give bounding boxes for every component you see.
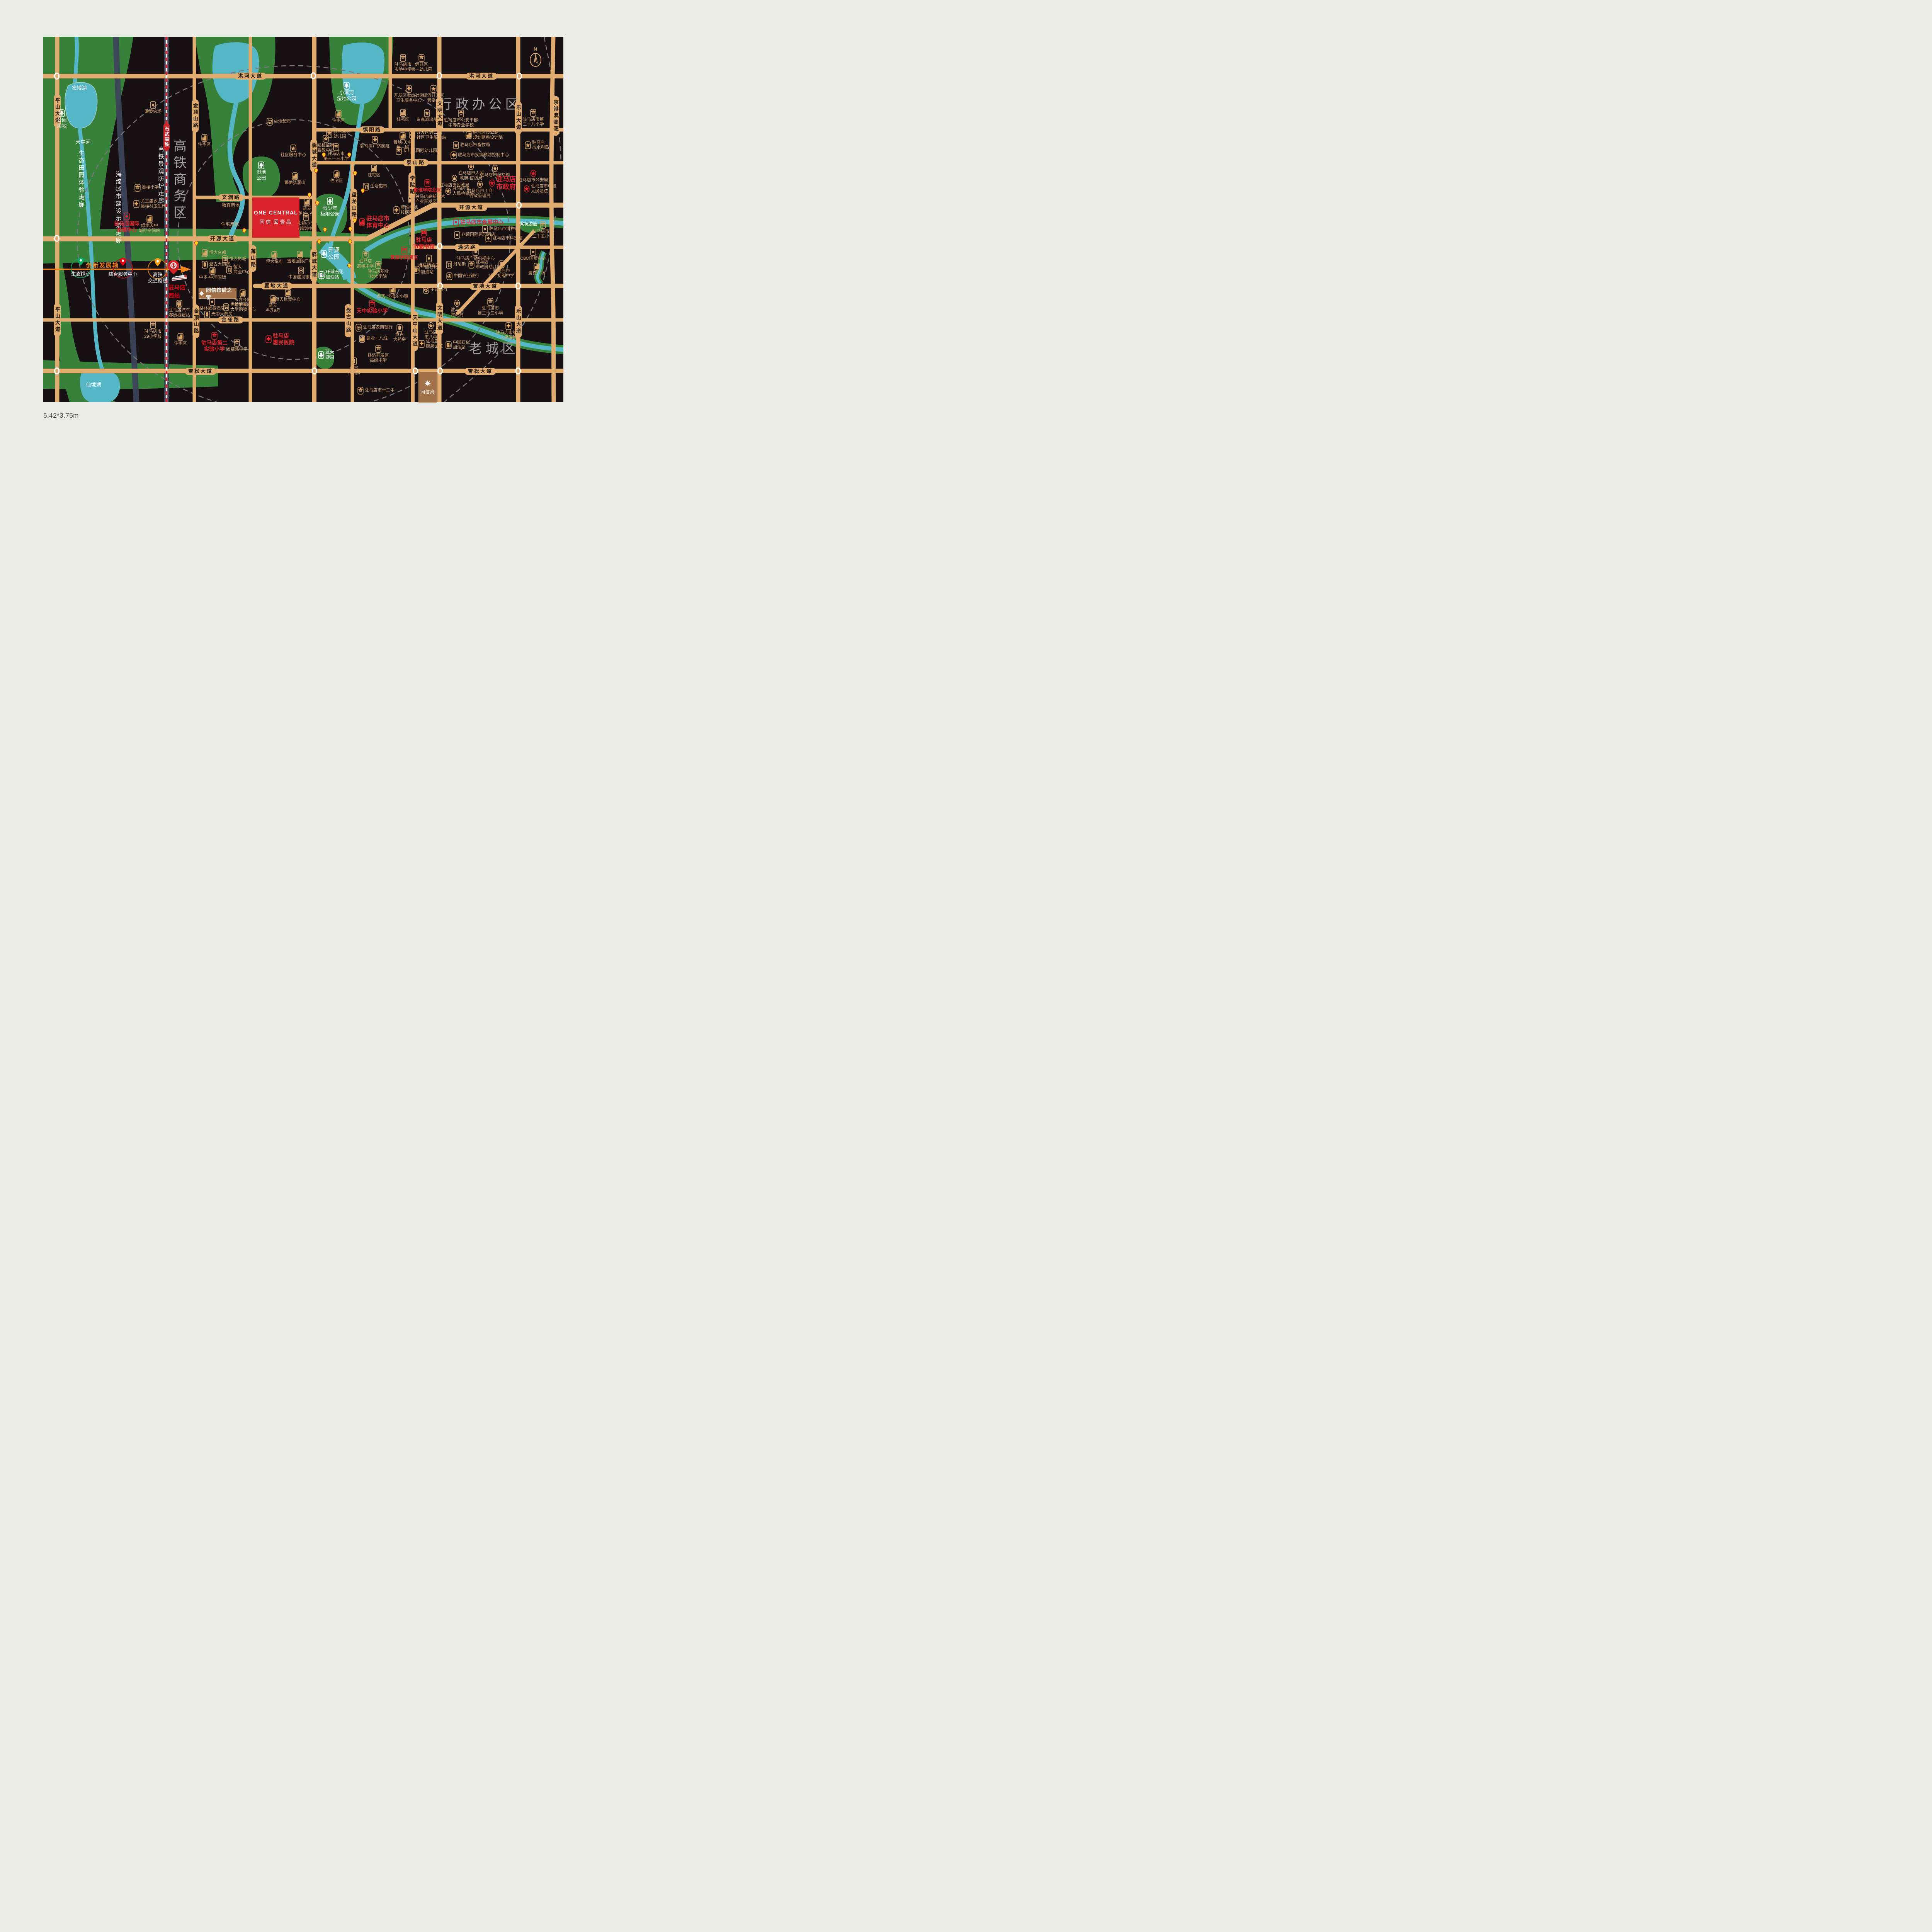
road-label: 置地大道 bbox=[469, 283, 501, 290]
poi-label: 中国石化加油站 bbox=[453, 340, 470, 350]
poi-label: 团结路中学 bbox=[208, 347, 266, 352]
landmark-icon bbox=[150, 101, 156, 109]
hospital-icon bbox=[505, 322, 512, 330]
school-icon bbox=[134, 184, 141, 192]
landmark-icon bbox=[426, 255, 432, 262]
road-label: 开源大道 bbox=[207, 235, 238, 242]
pharmacy-icon bbox=[202, 261, 208, 269]
compass-n-label: N bbox=[529, 46, 543, 52]
poi-label: 生活超市 bbox=[370, 184, 387, 189]
road-label: 开源大道 bbox=[456, 204, 487, 211]
buildings-icon bbox=[408, 196, 414, 203]
map-pin-icon bbox=[361, 188, 365, 196]
star-icon bbox=[453, 141, 459, 149]
map-pin-icon bbox=[317, 239, 321, 247]
tree-icon bbox=[318, 351, 324, 359]
district-label: 老城区 bbox=[469, 338, 519, 357]
star-icon bbox=[424, 109, 430, 117]
poi-label: 经济开发区高级中学 bbox=[349, 353, 407, 363]
poi-label: 恒大商业中心 bbox=[233, 265, 250, 275]
hospital-icon bbox=[265, 335, 272, 343]
school-icon bbox=[418, 54, 425, 62]
school-icon bbox=[424, 179, 430, 187]
road-label: 平山大道 bbox=[54, 303, 61, 337]
poi-label: 蓝天世贸中心 bbox=[259, 297, 317, 302]
poi-label: 丹尼斯 bbox=[453, 262, 466, 267]
intersection-ring bbox=[516, 202, 522, 209]
map-pin-icon bbox=[347, 152, 352, 160]
star-icon bbox=[323, 135, 329, 143]
intersection-ring bbox=[437, 367, 443, 374]
hospital-icon bbox=[393, 206, 400, 214]
intersection-ring bbox=[515, 367, 521, 374]
poi-label: 公园用地 bbox=[33, 117, 91, 129]
gov-star-icon bbox=[477, 180, 483, 188]
map-pin-icon bbox=[347, 263, 352, 270]
axis-node-label: 高铁交通枢纽 bbox=[148, 272, 167, 284]
poi-label: 蓝天·卡梅尔小镇 bbox=[364, 294, 422, 299]
bus-icon bbox=[176, 300, 182, 308]
gov-star-icon bbox=[530, 170, 536, 177]
axis-name: 创新发展轴 bbox=[86, 261, 119, 269]
cart-icon bbox=[446, 261, 452, 269]
landmark-icon bbox=[453, 218, 459, 226]
poi-label: 仙境湖 bbox=[65, 382, 122, 388]
gov-star-icon bbox=[454, 299, 460, 307]
district-label: 高铁商务区 bbox=[170, 139, 189, 222]
poi-label: 驻马店市中级人民法院 bbox=[531, 184, 556, 194]
gov-star-icon bbox=[468, 163, 474, 170]
poi-label: 农博湖 bbox=[50, 85, 108, 91]
poi-label: 爱克广场 bbox=[508, 271, 566, 276]
road-label: 金顶山路 bbox=[192, 99, 199, 133]
road-label: 京港澳高速 bbox=[552, 96, 559, 136]
school-icon bbox=[487, 298, 493, 306]
map-pin-icon bbox=[323, 227, 327, 235]
school-icon bbox=[375, 345, 381, 353]
poi-label: 关王庙乡吴楼村卫生所 bbox=[141, 199, 166, 209]
poi-label: 驻马店市十二中 bbox=[365, 388, 395, 393]
intersection-ring bbox=[515, 282, 521, 289]
buildings-icon bbox=[371, 165, 377, 172]
poi-label: 天中河 bbox=[54, 139, 112, 145]
cart-icon bbox=[267, 118, 273, 126]
tree-icon bbox=[344, 82, 350, 90]
rail-label: 石武高铁 bbox=[163, 123, 170, 151]
hospital-icon bbox=[406, 85, 412, 93]
landmark-icon bbox=[454, 231, 460, 239]
cart-icon bbox=[226, 266, 232, 274]
map-pin-icon bbox=[314, 168, 318, 175]
school-icon bbox=[375, 261, 381, 269]
star-icon bbox=[290, 145, 296, 152]
star-icon bbox=[430, 85, 437, 93]
landmark-icon bbox=[482, 225, 488, 233]
map-pin-icon bbox=[353, 218, 357, 225]
intersection-ring bbox=[517, 73, 522, 80]
poi-label: 住宅区 bbox=[175, 142, 233, 147]
bank-icon bbox=[298, 267, 304, 274]
poi-label: 恒大影城 bbox=[229, 257, 246, 262]
axis-node-label: 综合服务中心 bbox=[108, 272, 137, 278]
poi-label: 驻马店市疾病预防控制中心 bbox=[458, 153, 509, 158]
map-pin-icon bbox=[353, 171, 357, 178]
buildings-icon bbox=[201, 134, 207, 142]
bank-icon bbox=[355, 324, 362, 332]
buildings-icon bbox=[202, 249, 208, 257]
gov-star-icon bbox=[451, 175, 457, 182]
landmark-icon bbox=[485, 235, 492, 242]
intersection-ring bbox=[54, 367, 60, 374]
axis-node-pin-icon bbox=[155, 258, 161, 268]
landmark-icon bbox=[473, 248, 479, 256]
poi-label: 驻马店高级中学 bbox=[337, 259, 395, 269]
poi-label: 教育用地 bbox=[202, 203, 260, 209]
gov-star-icon bbox=[489, 179, 495, 187]
poi-label: 黄淮学院南区 bbox=[375, 255, 433, 260]
school-icon bbox=[303, 213, 309, 221]
poi-label: 驻马店市公安局 bbox=[504, 178, 562, 183]
poi-label: 万木森林幼儿园 bbox=[333, 129, 350, 139]
buildings-icon bbox=[359, 335, 365, 343]
poi-label: 驻马店市畜牧局 bbox=[460, 143, 490, 148]
poi-label: 蓝天游园 bbox=[325, 350, 334, 361]
gov-star-icon bbox=[428, 322, 434, 330]
hospital-icon bbox=[133, 200, 139, 208]
compass-icon bbox=[529, 52, 543, 68]
poi-label: CBD国贸中心 bbox=[504, 256, 562, 261]
poi-label: 黄淮学院北区 bbox=[398, 187, 456, 193]
poi-label: 住宅区 bbox=[308, 179, 366, 184]
axis-node-label: 生态绿心 bbox=[71, 271, 90, 277]
buildings-icon bbox=[400, 109, 406, 117]
school-icon bbox=[540, 221, 546, 229]
landmark-icon bbox=[530, 248, 536, 256]
poi-label: 黄淮学院校医院 bbox=[401, 205, 418, 215]
poi-label: 驻马店市公安干部中等专业学校 bbox=[432, 118, 490, 128]
buildings-icon bbox=[240, 289, 246, 297]
road-label: 洪河大道 bbox=[466, 73, 497, 80]
buildings-icon bbox=[297, 251, 303, 259]
gas-icon bbox=[413, 266, 420, 274]
poi-label: 小清河湿地公园 bbox=[318, 90, 376, 102]
poi-label: 驻马店市第四人民医院 bbox=[480, 330, 537, 340]
poi-label: 中多-中环国际 bbox=[184, 275, 241, 280]
poi-label: 潘坡农场 bbox=[124, 109, 182, 114]
poi-label: 驻马店汽车客运枢纽站 bbox=[150, 308, 208, 318]
map-pin-icon bbox=[348, 239, 352, 247]
intersection-ring bbox=[311, 72, 316, 79]
road-label: 学院路 bbox=[408, 172, 415, 199]
axis-node-pin-icon bbox=[120, 258, 126, 268]
corridor-label: 高铁景观防护走廊 bbox=[157, 146, 165, 205]
gas-icon bbox=[446, 341, 452, 349]
tree-icon bbox=[258, 162, 264, 169]
poi-label: 经开区第一幼儿园 bbox=[393, 62, 451, 72]
buildings-icon bbox=[534, 263, 540, 270]
poi-label: 驻马店市第二十三小学 bbox=[461, 306, 519, 316]
poi-label: 住宅区 bbox=[310, 118, 367, 123]
poi-label: 天中大药房 bbox=[211, 312, 233, 317]
poi-label: 吴楼小学 bbox=[142, 185, 159, 190]
poi-label: 驻马店惠民医院 bbox=[273, 333, 294, 346]
compass: N bbox=[529, 46, 543, 70]
map-pin-icon bbox=[322, 152, 326, 160]
buildings-icon bbox=[400, 132, 406, 140]
map-pin-icon bbox=[308, 192, 312, 200]
road-label: 金雀路 bbox=[218, 316, 243, 323]
school-icon bbox=[458, 110, 464, 117]
corridor-label: 海绵城市建设示范走廊 bbox=[114, 171, 122, 245]
school-icon bbox=[369, 300, 375, 308]
poi-label: 驻马店市会展中心 bbox=[460, 219, 503, 226]
cart-icon bbox=[223, 303, 229, 311]
buildings-icon bbox=[359, 218, 365, 226]
poi-label: 艾儿乐国际幼儿园 bbox=[403, 148, 437, 153]
poi-label: 中国银行 bbox=[430, 287, 447, 292]
poi-label: 开发区纬二路社区卫生服务站 bbox=[417, 130, 446, 140]
road-label: 雪松大道 bbox=[464, 368, 496, 375]
banner-tongxin-binfenzhichuang: 同信缤纷之窗 bbox=[199, 288, 236, 299]
poi-label: 中国石化加油站 bbox=[421, 265, 438, 275]
school-icon bbox=[400, 54, 406, 62]
school-icon bbox=[211, 332, 218, 340]
school-icon bbox=[362, 251, 369, 259]
corridor-label: 生态田园体验走廊 bbox=[77, 150, 85, 209]
bank-icon bbox=[423, 286, 429, 294]
landmark-icon bbox=[209, 298, 215, 306]
poi-label: 盘古大药房 bbox=[325, 366, 383, 376]
tree-icon bbox=[59, 109, 65, 117]
book-icon bbox=[421, 229, 427, 236]
poi-label: 驻马店农商银行 bbox=[363, 325, 393, 330]
poi-label: 天中实验小学 bbox=[343, 308, 401, 314]
poi-label: 恒大名都 bbox=[209, 250, 226, 255]
intersection-ring bbox=[413, 367, 418, 374]
intersection-ring bbox=[54, 73, 60, 80]
hospital-icon bbox=[451, 151, 457, 159]
poi-label: 生活超市 bbox=[274, 119, 291, 124]
star-icon bbox=[525, 141, 531, 149]
poi-label: 驻马店市公路规划勘察设计院 bbox=[473, 130, 503, 140]
scale-caption: 5.42*3.75m bbox=[43, 412, 79, 420]
poi-label: 驻马店康泉医院 bbox=[426, 339, 443, 349]
bank-icon bbox=[446, 272, 452, 280]
buildings-icon bbox=[466, 131, 472, 139]
school-icon bbox=[333, 143, 339, 151]
buildings-icon bbox=[333, 170, 340, 178]
gov-star-icon bbox=[524, 185, 530, 193]
poi-label: 中国建设银行 bbox=[272, 275, 330, 280]
map-poster: ONE CENTRAL 同信 壹品 同信缤纷之窗 同信府 N 创新发展轴 驻马店… bbox=[0, 0, 606, 438]
poi-label: 社区服务中心 bbox=[264, 153, 322, 158]
tree-icon bbox=[321, 250, 327, 258]
buildings-icon bbox=[209, 267, 216, 275]
buildings-icon bbox=[270, 295, 276, 303]
poi-label: 驻马店高新技术产业开发区 bbox=[415, 194, 445, 204]
road-label: 文渊路 bbox=[218, 194, 244, 201]
map-pin-icon bbox=[315, 201, 320, 208]
hospital-icon bbox=[418, 340, 425, 348]
school-icon bbox=[468, 261, 474, 269]
tree-icon bbox=[327, 197, 333, 205]
poi-label: 经济开发区管委会 bbox=[405, 93, 463, 103]
road-label: 雪松大道 bbox=[185, 368, 216, 375]
buildings-icon bbox=[285, 289, 291, 297]
buildings-icon bbox=[271, 251, 277, 259]
map-pin-icon bbox=[242, 228, 247, 235]
school-icon bbox=[357, 387, 364, 395]
buildings-icon bbox=[335, 110, 342, 118]
axis-node-pin-icon bbox=[78, 257, 84, 267]
buildings-icon bbox=[389, 286, 396, 294]
school-icon bbox=[498, 260, 505, 268]
school-icon bbox=[530, 109, 536, 117]
buildings-icon bbox=[292, 172, 298, 180]
intersection-ring bbox=[312, 367, 317, 374]
road-label: 慎阳路 bbox=[359, 126, 385, 133]
gov-star-icon bbox=[492, 165, 498, 172]
poi-label: 驻马店市第二十五小学 bbox=[514, 229, 572, 239]
sun-icon bbox=[199, 291, 204, 296]
poi-label: 驻马店职业技术学院 bbox=[349, 269, 407, 279]
banner-tongxinfu: 同信府 bbox=[418, 372, 437, 403]
train-station-pin-icon bbox=[168, 260, 179, 276]
poi-label: 中国农业银行 bbox=[454, 274, 479, 279]
road-label: 洪河大道 bbox=[235, 73, 266, 80]
poi-label: 驻马店市第二十八小学 bbox=[504, 117, 562, 127]
landmark-icon bbox=[124, 213, 130, 220]
intersection-ring bbox=[54, 235, 60, 242]
map-pin-icon bbox=[349, 226, 353, 234]
buildings-icon bbox=[146, 215, 153, 223]
school-icon bbox=[396, 147, 402, 155]
poi-label: 湿地公园 bbox=[232, 170, 290, 181]
hospital-icon bbox=[409, 131, 415, 139]
poi-label: 驻马店市图书馆 bbox=[395, 237, 453, 250]
sun-icon bbox=[425, 380, 431, 386]
poi-label: 驻马店市29小学校 bbox=[124, 329, 182, 339]
intersection-ring bbox=[437, 72, 442, 79]
poi-label: 住宅用地 bbox=[201, 222, 259, 228]
school-icon bbox=[234, 339, 240, 347]
poi-label: 绿地天中城际空间站 bbox=[121, 223, 179, 233]
poi-label: 驻马店市水利局 bbox=[532, 140, 549, 150]
road-label: 泰山路 bbox=[403, 159, 429, 166]
poi-label: 奥特莱斯大型购物中心 bbox=[230, 302, 256, 312]
road-label: 置地大道 bbox=[261, 282, 293, 289]
map-pin-icon bbox=[194, 241, 199, 248]
station-label: 驻马店西站 bbox=[168, 283, 185, 299]
poi-label: 置地国际广场 bbox=[271, 259, 329, 264]
poi-label: 驻马店市体育中心 bbox=[366, 215, 389, 229]
school-icon bbox=[150, 321, 156, 329]
